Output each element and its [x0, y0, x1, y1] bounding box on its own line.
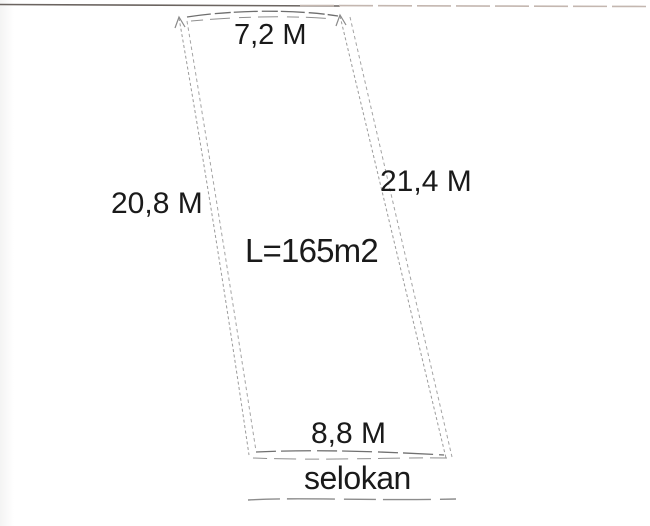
- area-label: L=165m2: [245, 234, 378, 267]
- land-plot-sketch: 7,2 M 20,8 M 21,4 M L=165m2 8,8 M seloka…: [0, 0, 650, 526]
- top-dimension-label: 7,2 M: [234, 21, 307, 50]
- bottom-dimension-label: 8,8 M: [311, 419, 386, 449]
- scan-top-line-dark: [0, 5, 340, 7]
- bottom-edge-line-inner: [253, 458, 447, 459]
- bottom-edge-line-outer: [256, 451, 444, 455]
- right-dimension-label: 21,4 M: [380, 167, 472, 197]
- selokan-annotation: selokan: [304, 462, 411, 494]
- scan-top-line-light: [300, 6, 650, 7]
- left-edge-line-outer: [179, 18, 249, 455]
- left-dimension-label: 20,8 M: [111, 189, 203, 219]
- top-edge-line-outer: [187, 11, 338, 17]
- selokan-line: [248, 499, 456, 500]
- right-arrowhead-icon: [336, 15, 346, 26]
